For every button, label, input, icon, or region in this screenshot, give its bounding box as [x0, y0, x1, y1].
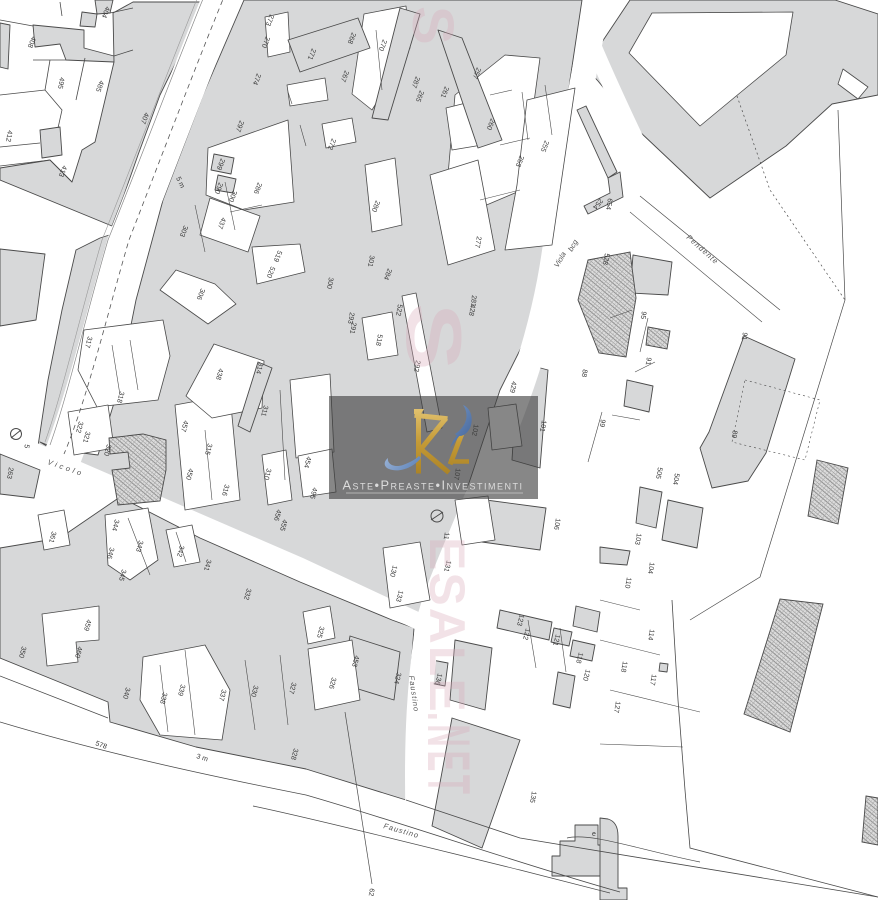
svg-text:91: 91: [644, 357, 652, 366]
svg-text:88: 88: [580, 369, 588, 378]
svg-text:S: S: [390, 303, 477, 371]
svg-text:.NET: .NET: [414, 712, 480, 798]
svg-text:62: 62: [367, 888, 375, 897]
svg-text:e: e: [592, 831, 596, 838]
svg-text:89: 89: [730, 430, 738, 439]
svg-text:91: 91: [740, 332, 748, 341]
svg-text:S: S: [400, 6, 465, 45]
svg-text:ESALE: ESALE: [419, 537, 475, 714]
svg-text:99: 99: [598, 419, 606, 428]
svg-text:Aste•Preaste•Investimenti: Aste•Preaste•Investimenti: [342, 478, 523, 493]
svg-text:95: 95: [639, 311, 647, 320]
